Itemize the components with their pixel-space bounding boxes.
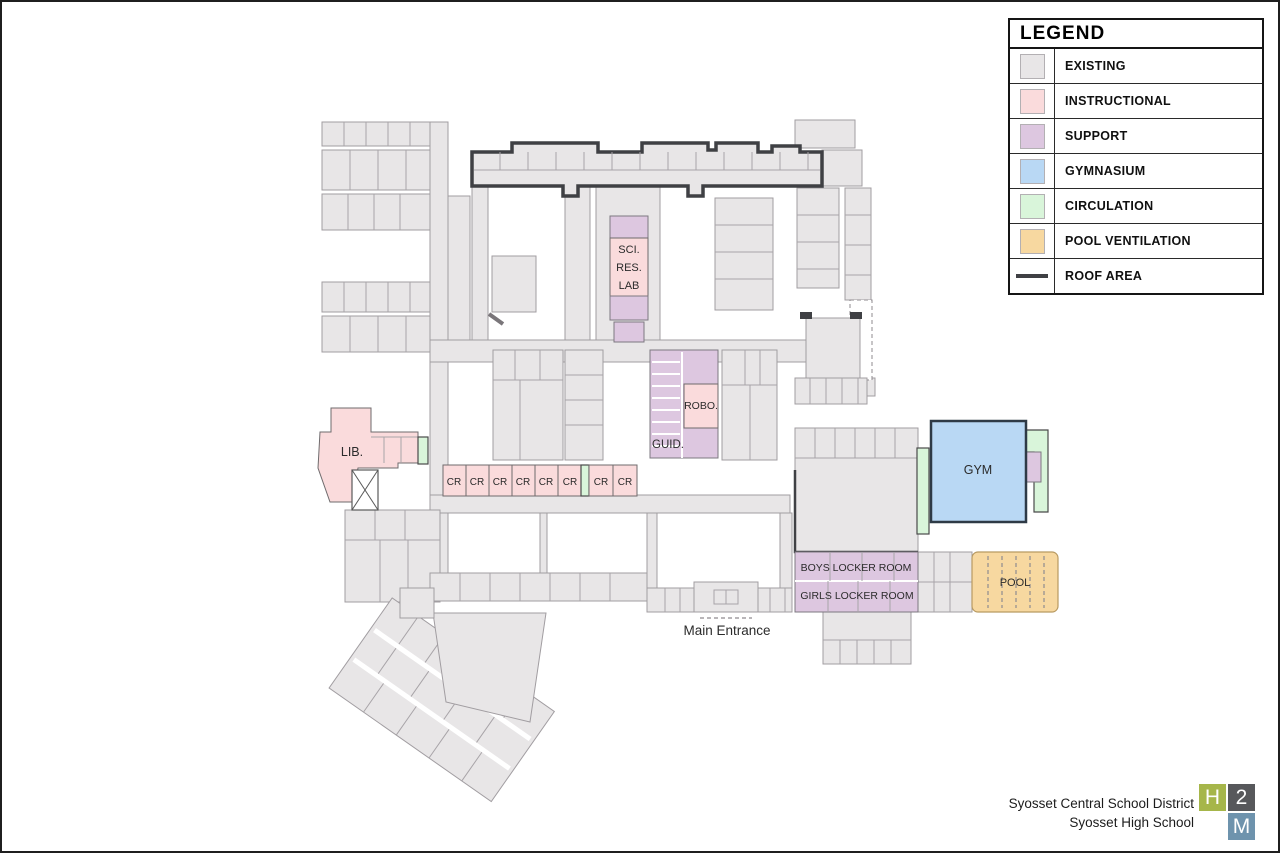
gym-area [917,421,1048,534]
logo-letter-m: M [1228,813,1255,840]
legend-label: INSTRUCTIONAL [1055,94,1171,108]
legend-row-roof-area: ROOF AREA [1010,259,1262,293]
guidance-label: GUID. [652,439,684,451]
stair-symbol [352,470,378,510]
courtyard-structure [489,256,536,324]
cr-label-5: CR [539,477,553,488]
floor-plan-sheet: SCI. RES. LAB ROBO. GUID. LIB. GYM POOL … [0,0,1280,853]
auditorium-block [795,312,867,404]
cr-label-2: CR [470,477,484,488]
legend-row-support: SUPPORT [1010,119,1262,154]
boys-locker-label: BOYS LOCKER ROOM [801,562,912,574]
existing-swatch [1020,54,1045,79]
h2m-logo: H 2 M [1199,784,1256,841]
sci-res-lab-label-1: SCI. [618,244,639,256]
logo-letter-2: 2 [1228,784,1255,811]
legend-title: LEGEND [1010,20,1262,49]
south-wing-diagonal [329,588,554,802]
pool-label: POOL [1000,577,1031,589]
library-label: LIB. [341,445,363,459]
pool-ventilation-swatch [1020,229,1045,254]
classroom-row-circulation [581,465,589,496]
roof-area-swatch [1016,274,1048,278]
district-name: Syosset Central School District [1009,794,1194,813]
locker-rooms [795,552,918,612]
legend-label: ROOF AREA [1055,269,1142,283]
library-circulation [418,437,428,464]
gym-label: GYM [964,463,992,477]
cr-label-8: CR [618,477,632,488]
gym-support-room [1026,452,1041,482]
cr-label-7: CR [594,477,608,488]
legend-row-circulation: CIRCULATION [1010,189,1262,224]
school-name: Syosset High School [1009,813,1194,832]
main-entrance [694,582,758,618]
cr-label-6: CR [563,477,577,488]
circulation-swatch [1020,194,1045,219]
gym-circulation-west [917,448,929,534]
cr-label-3: CR [493,477,507,488]
legend-row-instructional: INSTRUCTIONAL [1010,84,1262,119]
logo-letter-h: H [1199,784,1226,811]
main-entrance-label: Main Entrance [683,623,770,638]
legend-label: SUPPORT [1055,129,1128,143]
support-swatch [1020,124,1045,149]
sci-res-lab-label-3: LAB [619,280,640,292]
project-title-block: Syosset Central School District Syosset … [1009,794,1194,832]
legend: LEGEND EXISTING INSTRUCTIONAL SUPPORT GY… [1008,18,1264,295]
legend-label: EXISTING [1055,59,1126,73]
robotics-label: ROBO. [684,400,718,412]
instructional-swatch [1020,89,1045,114]
girls-locker-label: GIRLS LOCKER ROOM [800,590,913,602]
cr-label-4: CR [516,477,530,488]
cr-label-1: CR [447,477,461,488]
legend-label: CIRCULATION [1055,199,1153,213]
science-research-lab [610,216,648,342]
gymnasium-swatch [1020,159,1045,184]
legend-row-existing: EXISTING [1010,49,1262,84]
legend-row-pool-ventilation: POOL VENTILATION [1010,224,1262,259]
legend-row-gymnasium: GYMNASIUM [1010,154,1262,189]
legend-label: POOL VENTILATION [1055,234,1191,248]
legend-label: GYMNASIUM [1055,164,1145,178]
sci-res-lab-label-2: RES. [616,262,642,274]
